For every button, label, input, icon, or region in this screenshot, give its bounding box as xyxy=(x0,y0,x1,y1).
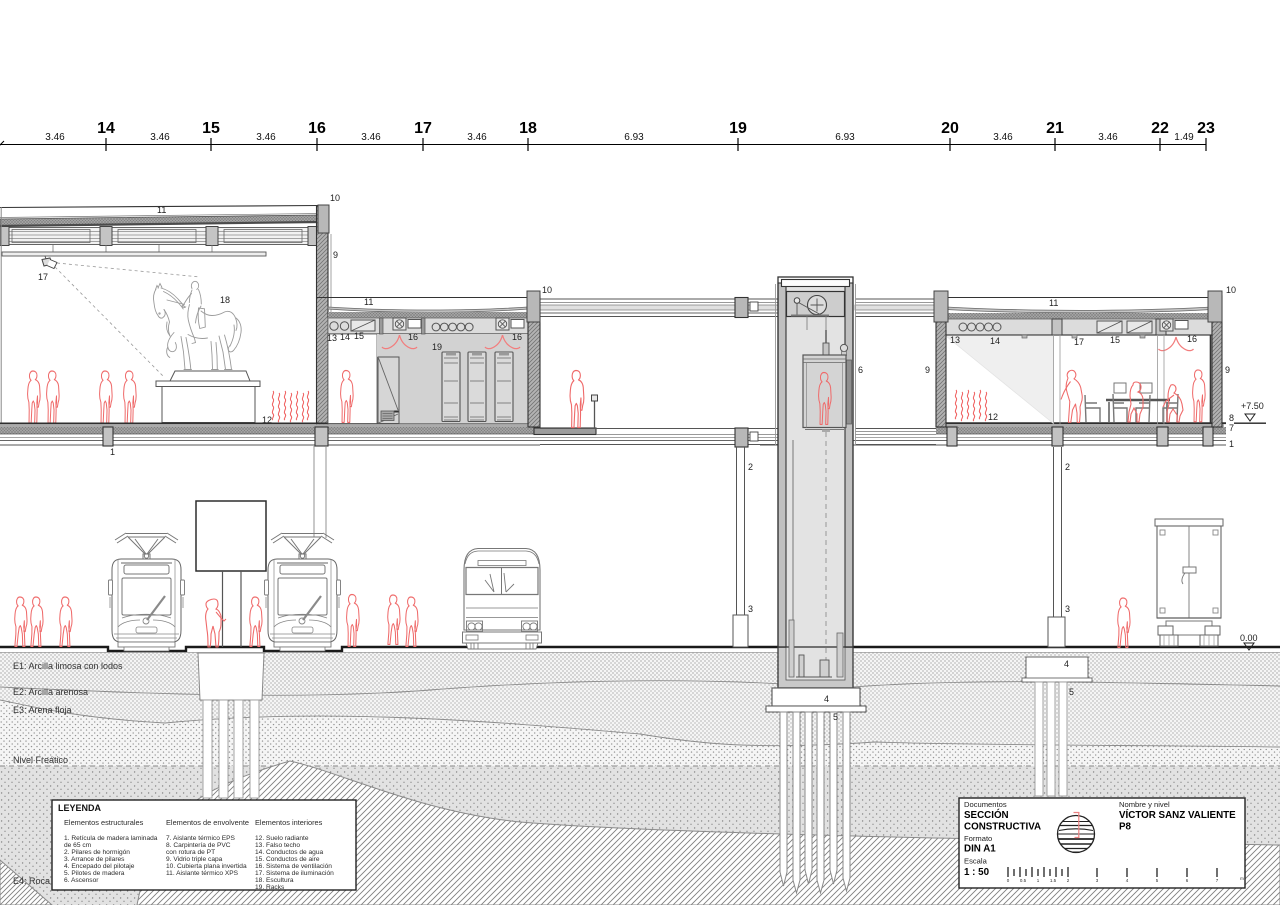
svg-text:1: 1 xyxy=(110,447,115,457)
svg-text:E1: Arcilla limosa con lodos: E1: Arcilla limosa con lodos xyxy=(13,661,123,671)
svg-text:17. Sistema de iluminación: 17. Sistema de iluminación xyxy=(255,870,334,877)
svg-text:0.5: 0.5 xyxy=(1020,878,1027,883)
svg-text:16. Sistema de ventilación: 16. Sistema de ventilación xyxy=(255,863,332,870)
svg-text:11. Aislante térmico XPS: 11. Aislante térmico XPS xyxy=(166,870,239,877)
svg-text:15: 15 xyxy=(1110,335,1120,345)
svg-text:6.93: 6.93 xyxy=(624,132,644,143)
svg-text:18: 18 xyxy=(220,295,230,305)
svg-text:Documentos: Documentos xyxy=(964,800,1007,809)
svg-text:19: 19 xyxy=(729,120,747,137)
svg-text:16: 16 xyxy=(512,332,522,342)
svg-text:14: 14 xyxy=(340,332,350,342)
svg-text:14: 14 xyxy=(990,336,1000,346)
svg-text:E2: Arcilla arenosa: E2: Arcilla arenosa xyxy=(13,687,88,697)
svg-text:Formato: Formato xyxy=(964,834,992,843)
svg-text:Elementos de envolvente: Elementos de envolvente xyxy=(166,818,249,827)
svg-text:DIN A1: DIN A1 xyxy=(964,844,996,855)
svg-text:E3: Arena floja: E3: Arena floja xyxy=(13,705,72,715)
svg-text:8. Carpintería de PVC: 8. Carpintería de PVC xyxy=(166,842,231,849)
svg-text:10: 10 xyxy=(1226,285,1236,295)
svg-text:Elementos estructurales: Elementos estructurales xyxy=(64,818,144,827)
svg-text:Elementos interiores: Elementos interiores xyxy=(255,818,323,827)
svg-text:13: 13 xyxy=(327,333,337,343)
svg-text:3: 3 xyxy=(748,604,753,614)
svg-text:16: 16 xyxy=(408,332,418,342)
svg-text:13: 13 xyxy=(950,335,960,345)
svg-text:21: 21 xyxy=(1046,120,1064,137)
svg-text:3. Arrance de pilares: 3. Arrance de pilares xyxy=(64,856,125,863)
svg-text:12: 12 xyxy=(988,412,998,422)
svg-text:3.46: 3.46 xyxy=(45,132,65,143)
svg-text:3.46: 3.46 xyxy=(150,132,170,143)
svg-text:3.46: 3.46 xyxy=(1098,132,1118,143)
svg-text:1. Retícula de madera laminada: 1. Retícula de madera laminada xyxy=(64,835,158,842)
svg-text:5: 5 xyxy=(1069,687,1074,697)
svg-text:6. Ascensor: 6. Ascensor xyxy=(64,877,99,884)
svg-text:6.93: 6.93 xyxy=(835,132,855,143)
svg-text:0.00: 0.00 xyxy=(1240,633,1258,643)
svg-text:9: 9 xyxy=(333,250,338,260)
svg-text:16: 16 xyxy=(1187,334,1197,344)
svg-text:P8: P8 xyxy=(1119,822,1132,833)
svg-text:3.46: 3.46 xyxy=(256,132,276,143)
svg-text:7. Aislante térmico EPS: 7. Aislante térmico EPS xyxy=(166,835,236,842)
svg-text:22: 22 xyxy=(1151,120,1169,137)
svg-text:17: 17 xyxy=(38,272,48,282)
svg-text:4. Encepado del pilotaje: 4. Encepado del pilotaje xyxy=(64,863,135,870)
svg-text:10: 10 xyxy=(330,193,340,203)
svg-text:10. Cubierta plana invertida: 10. Cubierta plana invertida xyxy=(166,863,247,870)
svg-text:23: 23 xyxy=(1197,120,1215,137)
svg-text:1 : 50: 1 : 50 xyxy=(964,867,990,878)
svg-text:15. Conductos de aire: 15. Conductos de aire xyxy=(255,856,320,863)
svg-text:3.46: 3.46 xyxy=(467,132,487,143)
svg-text:6: 6 xyxy=(858,365,863,375)
svg-text:18: 18 xyxy=(519,120,537,137)
svg-text:CONSTRUCTIVA: CONSTRUCTIVA xyxy=(964,822,1041,833)
svg-text:15: 15 xyxy=(202,120,220,137)
svg-text:de 65 cm: de 65 cm xyxy=(64,842,92,849)
svg-text:LEYENDA: LEYENDA xyxy=(58,803,102,813)
svg-text:2. Pilares de hormigón: 2. Pilares de hormigón xyxy=(64,849,130,856)
svg-text:8: 8 xyxy=(1229,413,1234,423)
svg-text:con rotura de PT: con rotura de PT xyxy=(166,849,215,856)
svg-text:11: 11 xyxy=(1049,298,1058,308)
svg-text:5. Pilotes de madera: 5. Pilotes de madera xyxy=(64,870,125,877)
svg-text:Escala: Escala xyxy=(964,857,988,866)
svg-text:9: 9 xyxy=(925,365,930,375)
svg-text:5: 5 xyxy=(833,712,838,722)
svg-text:19: 19 xyxy=(432,342,442,352)
svg-text:VÍCTOR SANZ VALIENTE: VÍCTOR SANZ VALIENTE xyxy=(1119,809,1236,821)
svg-text:1: 1 xyxy=(1229,439,1234,449)
svg-text:3.46: 3.46 xyxy=(993,132,1013,143)
svg-text:9: 9 xyxy=(1225,365,1230,375)
svg-text:17: 17 xyxy=(414,120,432,137)
svg-text:11: 11 xyxy=(364,297,373,307)
svg-text:19. Racks: 19. Racks xyxy=(255,884,285,891)
svg-text:12. Suelo radiante: 12. Suelo radiante xyxy=(255,835,309,842)
svg-text:4: 4 xyxy=(824,694,829,704)
svg-text:11: 11 xyxy=(157,205,166,215)
svg-text:2: 2 xyxy=(748,462,753,472)
svg-text:1.5: 1.5 xyxy=(1050,878,1057,883)
svg-text:SECCIÓN: SECCIÓN xyxy=(964,809,1009,821)
svg-text:16: 16 xyxy=(308,120,326,137)
svg-text:10: 10 xyxy=(542,285,552,295)
svg-text:20: 20 xyxy=(941,120,959,137)
svg-text:m: m xyxy=(1240,876,1244,881)
svg-text:9. Vidrio triple capa: 9. Vidrio triple capa xyxy=(166,856,223,863)
svg-text:4: 4 xyxy=(1064,659,1069,669)
svg-text:7: 7 xyxy=(1229,423,1234,433)
svg-text:13. Falso techo: 13. Falso techo xyxy=(255,842,300,849)
svg-text:E4: Roca: E4: Roca xyxy=(13,876,50,886)
svg-text:3.46: 3.46 xyxy=(361,132,381,143)
svg-text:3: 3 xyxy=(1065,604,1070,614)
svg-text:15: 15 xyxy=(354,331,364,341)
svg-text:+7.50: +7.50 xyxy=(1241,401,1264,411)
svg-text:Nivel Freático: Nivel Freático xyxy=(13,755,68,765)
svg-text:14. Conductos de agua: 14. Conductos de agua xyxy=(255,849,324,856)
svg-text:14: 14 xyxy=(97,120,115,137)
svg-text:18. Escultura: 18. Escultura xyxy=(255,877,294,884)
svg-text:17: 17 xyxy=(1074,337,1084,347)
svg-text:2: 2 xyxy=(1065,462,1070,472)
svg-text:Nombre y nivel: Nombre y nivel xyxy=(1119,800,1170,809)
svg-text:1.49: 1.49 xyxy=(1174,132,1194,143)
